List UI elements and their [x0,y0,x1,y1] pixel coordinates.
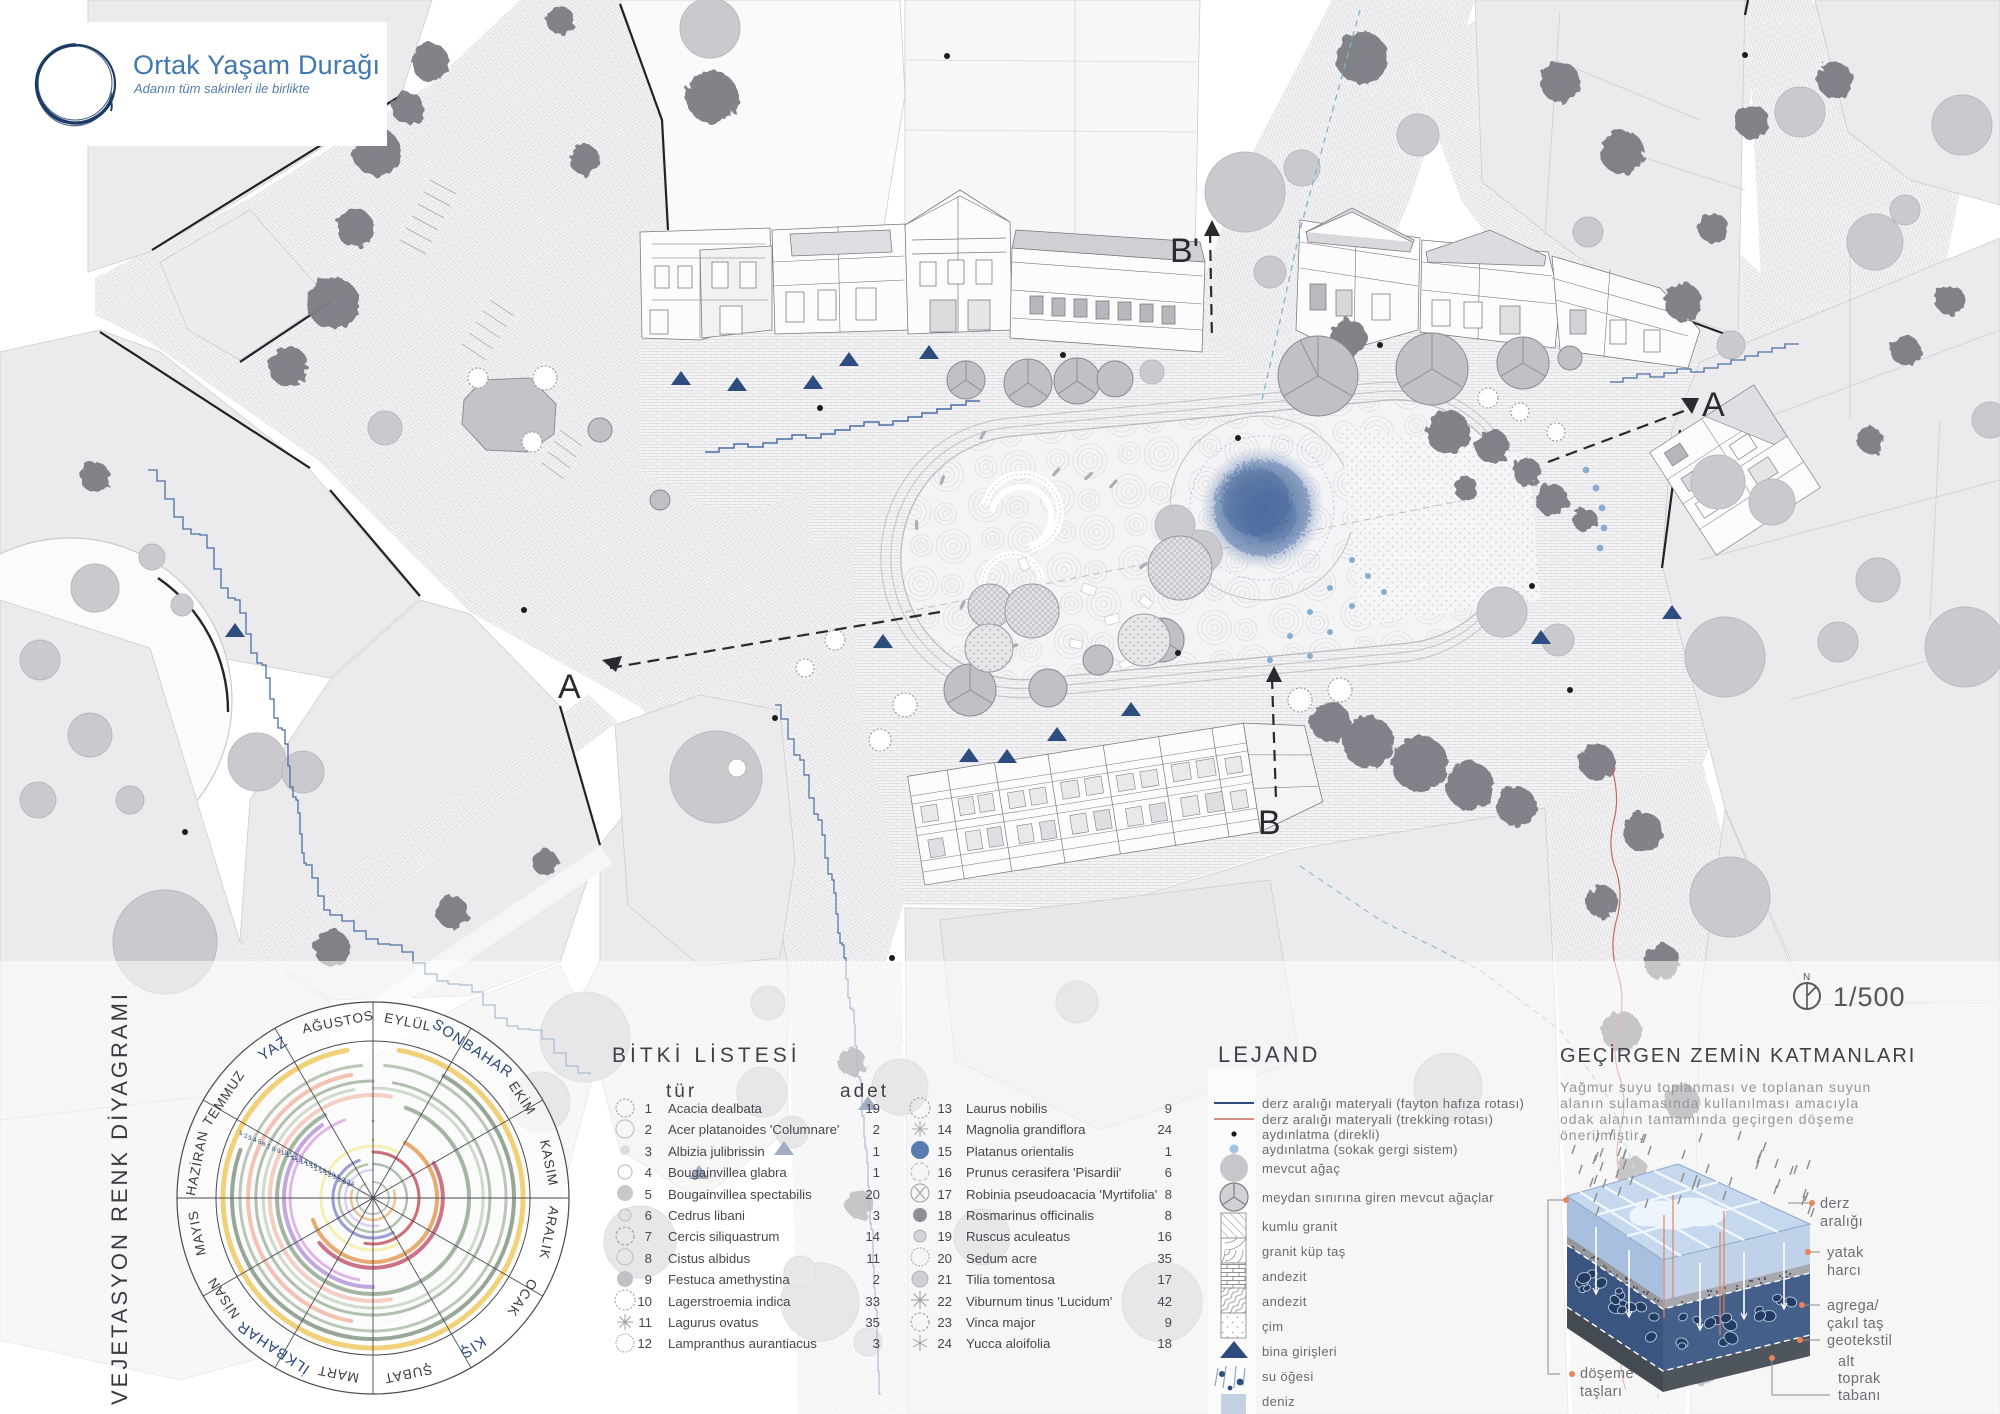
svg-text:9: 9 [1165,1315,1172,1330]
svg-text:6: 6 [262,1141,266,1148]
svg-text:23: 23 [937,1315,952,1330]
svg-text:2: 2 [645,1122,652,1137]
svg-text:Magnolia grandiflora: Magnolia grandiflora [966,1122,1086,1137]
svg-text:su öğesi: su öğesi [1262,1369,1314,1384]
svg-text:aydınlatma (sokak gergi sistem: aydınlatma (sokak gergi sistem) [1262,1142,1458,1157]
svg-text:Ruscus aculeatus: Ruscus aculeatus [966,1229,1070,1244]
svg-text:18: 18 [937,1208,952,1223]
svg-text:6: 6 [1165,1165,1172,1180]
svg-text:35: 35 [865,1315,880,1330]
svg-text:Cercis siliquastrum: Cercis siliquastrum [668,1229,779,1244]
svg-text:8: 8 [272,1146,276,1153]
svg-text:andezit: andezit [1262,1269,1307,1284]
svg-text:B: B [1258,804,1281,842]
svg-text:A: A [1702,386,1725,424]
svg-text:Albizia julibrissin: Albizia julibrissin [668,1144,765,1159]
svg-text:17: 17 [1157,1272,1172,1287]
svg-text:derz: derz [1820,1196,1850,1212]
svg-text:1: 1 [645,1101,652,1116]
svg-text:Rosmarinus officinalis: Rosmarinus officinalis [966,1208,1094,1223]
svg-text:20: 20 [865,1187,880,1202]
svg-text:bina girişleri: bina girişleri [1262,1344,1337,1359]
svg-text:Festuca amethystina: Festuca amethystina [668,1272,790,1287]
svg-text:14: 14 [865,1229,880,1244]
svg-text:2: 2 [873,1272,880,1287]
svg-text:19: 19 [865,1101,880,1116]
svg-text:6: 6 [645,1208,652,1223]
svg-text:alt: alt [1838,1354,1855,1370]
svg-text:GEÇİRGEN ZEMİN KATMANLARI: GEÇİRGEN ZEMİN KATMANLARI [1560,1044,1916,1067]
svg-text:deniz: deniz [1262,1394,1295,1409]
svg-text:1: 1 [873,1165,880,1180]
svg-text:toprak: toprak [1838,1371,1881,1387]
svg-text:Lagerstroemia indica: Lagerstroemia indica [668,1294,791,1309]
svg-text:1/500: 1/500 [1833,982,1906,1012]
svg-text:N: N [1803,972,1810,983]
svg-text:15: 15 [937,1144,952,1159]
svg-text:çim: çim [1262,1319,1283,1334]
svg-text:Lagurus ovatus: Lagurus ovatus [668,1315,759,1330]
svg-text:LEJAND: LEJAND [1218,1042,1320,1067]
svg-text:3: 3 [873,1208,880,1223]
svg-text:taşları: taşları [1580,1384,1622,1400]
svg-text:çakıl taş: çakıl taş [1827,1316,1884,1332]
svg-text:Platanus orientalis: Platanus orientalis [966,1144,1074,1159]
svg-text:A: A [558,668,581,706]
svg-text:Bougainvillea spectabilis: Bougainvillea spectabilis [668,1187,812,1202]
svg-text:17: 17 [937,1187,952,1202]
svg-text:adet: adet [840,1081,889,1102]
svg-text:meydan sınırına giren mevcut a: meydan sınırına giren mevcut ağaçlar [1262,1190,1494,1205]
svg-text:8: 8 [1165,1187,1172,1202]
svg-text:BİTKİ LİSTESİ: BİTKİ LİSTESİ [612,1044,801,1067]
svg-text:8: 8 [645,1251,652,1266]
svg-text:odak alanın tamamında geçirgen: odak alanın tamamında geçirgen döşeme [1560,1111,1855,1127]
svg-text:1: 1 [239,1130,243,1137]
svg-text:VEJETASYON RENK DİYAGRAMI: VEJETASYON RENK DİYAGRAMI [107,991,132,1405]
svg-text:derz aralığı materyali (trekki: derz aralığı materyali (trekking rotası) [1262,1112,1493,1127]
svg-text:5: 5 [645,1187,652,1202]
svg-text:19: 19 [937,1229,952,1244]
svg-text:döşeme: döşeme [1580,1366,1634,1382]
svg-text:21: 21 [937,1272,952,1287]
svg-text:Acer platanoides 'Columnare': Acer platanoides 'Columnare' [668,1122,839,1137]
svg-text:yatak: yatak [1827,1245,1864,1261]
svg-text:Sedum acre: Sedum acre [966,1251,1037,1266]
svg-text:B': B' [1170,232,1199,270]
svg-text:Yucca aloifolia: Yucca aloifolia [966,1336,1051,1351]
svg-text:13: 13 [937,1101,952,1116]
svg-text:7: 7 [267,1144,271,1151]
svg-text:aralığı: aralığı [1820,1214,1863,1230]
svg-text:8: 8 [1165,1208,1172,1223]
svg-text:22: 22 [937,1294,952,1309]
svg-text:Cistus albidus: Cistus albidus [668,1251,750,1266]
svg-text:andezit: andezit [1262,1294,1307,1309]
svg-text:16: 16 [1157,1229,1172,1244]
svg-text:1: 1 [1165,1144,1172,1159]
svg-text:14: 14 [937,1122,952,1137]
svg-text:Prunus cerasifera 'Pisardii': Prunus cerasifera 'Pisardii' [966,1165,1121,1180]
svg-text:12: 12 [637,1336,652,1351]
svg-text:Adanın tüm sakinleri ile birli: Adanın tüm sakinleri ile birlikte [133,81,310,96]
svg-text:alanın sulamasında kullanılmas: alanın sulamasında kullanılması amacıyla [1560,1095,1859,1111]
svg-text:4: 4 [645,1165,652,1180]
svg-text:Tilia tomentosa: Tilia tomentosa [966,1272,1056,1287]
svg-text:20: 20 [937,1251,952,1266]
svg-text:Lampranthus aurantiacus: Lampranthus aurantiacus [668,1336,817,1351]
svg-text:Vinca major: Vinca major [966,1315,1036,1330]
svg-text:11: 11 [866,1251,880,1266]
svg-text:agrega/: agrega/ [1827,1298,1880,1314]
svg-text:granit küp taş: granit küp taş [1262,1244,1346,1259]
svg-text:Bougainvillea glabra: Bougainvillea glabra [668,1165,787,1180]
svg-text:derz aralığı materyali (fayton: derz aralığı materyali (fayton hafıza ro… [1262,1096,1524,1111]
svg-text:9: 9 [1165,1101,1172,1116]
svg-text:Viburnum tinus 'Lucidum': Viburnum tinus 'Lucidum' [966,1294,1112,1309]
svg-text:önerilmiştir.: önerilmiştir. [1560,1127,1644,1143]
svg-text:aydınlatma (direkli): aydınlatma (direkli) [1262,1127,1380,1142]
svg-text:Yağmur suyu toplanması ve topl: Yağmur suyu toplanması ve toplanan suyun [1560,1079,1871,1095]
svg-text:Cedrus libani: Cedrus libani [668,1208,745,1223]
svg-text:7: 7 [645,1229,652,1244]
svg-text:geotekstil: geotekstil [1827,1333,1892,1349]
svg-text:3: 3 [873,1336,880,1351]
svg-text:harcı: harcı [1827,1263,1861,1279]
svg-text:3: 3 [248,1135,252,1142]
svg-text:mevcut ağaç: mevcut ağaç [1262,1161,1340,1176]
svg-text:Robinia pseudoacacia 'Myrtifol: Robinia pseudoacacia 'Myrtifolia' [966,1187,1157,1202]
svg-text:24: 24 [1157,1122,1172,1137]
svg-text:33: 33 [865,1294,880,1309]
svg-text:9: 9 [645,1272,652,1287]
svg-text:42: 42 [1157,1294,1172,1309]
svg-text:24: 24 [937,1336,952,1351]
svg-text:tabanı: tabanı [1838,1388,1881,1404]
svg-text:1: 1 [873,1144,880,1159]
svg-text:10: 10 [637,1294,652,1309]
svg-text:kumlu granit: kumlu granit [1262,1219,1338,1234]
svg-text:4: 4 [253,1137,257,1144]
svg-text:Acacia dealbata: Acacia dealbata [668,1101,763,1116]
svg-text:3: 3 [645,1144,652,1159]
svg-text:16: 16 [937,1165,952,1180]
svg-text:2: 2 [873,1122,880,1137]
svg-text:Ortak Yaşam Durağı: Ortak Yaşam Durağı [133,50,380,80]
svg-text:Laurus nobilis: Laurus nobilis [966,1101,1048,1116]
svg-text:35: 35 [1157,1251,1172,1266]
svg-text:tür: tür [666,1081,697,1102]
svg-text:24: 24 [347,1181,355,1188]
svg-text:18: 18 [1157,1336,1172,1351]
svg-text:11: 11 [638,1315,652,1330]
